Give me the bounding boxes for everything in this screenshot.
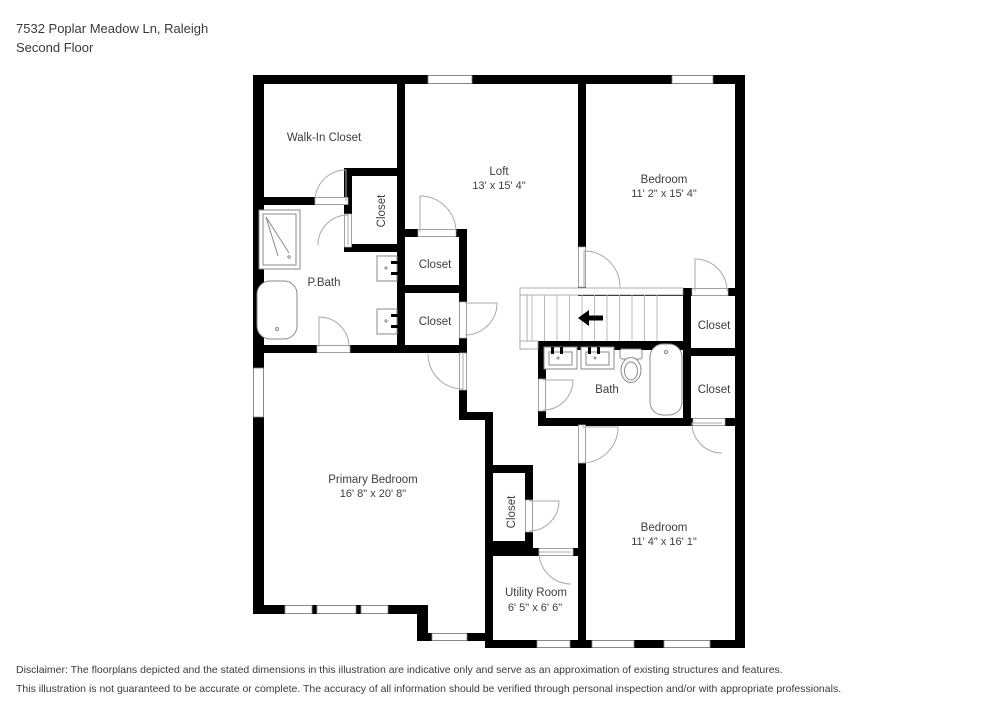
wall-segment (459, 412, 493, 420)
door-opening (539, 379, 546, 411)
address-line: 7532 Poplar Meadow Ln, Raleigh (16, 19, 208, 38)
stair-rail (520, 288, 683, 295)
wall-segment (397, 75, 405, 353)
wall-segment (397, 285, 467, 293)
door-opening (315, 198, 348, 205)
room-label-closet-wic-side: Closet (376, 194, 388, 227)
wall-segment (344, 244, 405, 252)
window (537, 641, 570, 648)
room-label-bath: Bath (595, 384, 619, 396)
room-label-bedroom-top: Bedroom (641, 174, 688, 186)
door-swing (543, 380, 573, 410)
door-swing (692, 423, 722, 453)
disclaimer-line-2: This illustration is not guaranteed to b… (16, 680, 841, 699)
bathtub (257, 281, 297, 339)
door-opening (579, 425, 586, 463)
wall-segment (253, 75, 745, 84)
door-swing (529, 501, 559, 531)
door-swing (428, 354, 463, 389)
room-label-closet-bath-side: Closet (698, 384, 731, 396)
door-swing (539, 552, 571, 584)
door-opening (460, 302, 467, 338)
door-swing (584, 251, 620, 287)
sink-vanity (377, 309, 398, 334)
room-label-closet-bedroom-top: Closet (698, 320, 731, 332)
sink-vanity (581, 347, 614, 369)
room-label-primary-bedroom: Primary Bedroom (328, 474, 417, 486)
room-label-walk-in-closet: Walk-In Closet (287, 132, 362, 144)
door-opening (317, 346, 350, 353)
window (672, 76, 713, 84)
toilet (620, 349, 642, 383)
window (428, 76, 472, 84)
shower (259, 210, 300, 269)
windows (254, 76, 714, 648)
wall-segment (253, 345, 467, 353)
room-label-closet-hall-upper: Closet (419, 259, 452, 271)
floor-line: Second Floor (16, 38, 208, 57)
wall-segment (485, 541, 533, 548)
room-dims-bedroom-bottom: 11' 4" x 16' 1" (631, 536, 697, 548)
room-label-closet-utility-side: Closet (506, 495, 518, 528)
floorplan-drawing: Walk-In Closet Loft 13' x 15' 4" Bedroom… (0, 0, 1000, 707)
door-opening (418, 230, 456, 237)
disclaimer: Disclaimer: The floorplans depicted and … (16, 661, 841, 699)
wall-segment (683, 296, 691, 426)
wall-segment (485, 465, 533, 473)
window (432, 634, 467, 641)
window (254, 368, 264, 417)
door-opening (693, 419, 725, 426)
staircase (520, 288, 683, 349)
sink-vanity (544, 347, 577, 369)
wall-segment (485, 412, 493, 648)
sink-vanity (377, 256, 398, 281)
stair-rail (520, 341, 538, 349)
wall-segment (735, 75, 745, 648)
room-dims-loft: 13' x 15' 4" (472, 180, 525, 192)
window (664, 641, 710, 648)
room-label-closet-hall-lower: Closet (419, 316, 452, 328)
door-swing (582, 427, 618, 463)
door-opening (526, 500, 533, 532)
wall-segment (253, 75, 264, 614)
door-swing (315, 170, 346, 201)
wall-segment (344, 168, 405, 176)
door-opening (692, 289, 728, 296)
plan-header: 7532 Poplar Meadow Ln, Raleigh Second Fl… (16, 19, 208, 57)
window (317, 606, 356, 614)
disclaimer-line-1: Disclaimer: The floorplans depicted and … (16, 661, 841, 680)
wall-segment (683, 348, 745, 356)
room-dims-primary-bedroom: 16' 8" x 20' 8" (340, 488, 407, 500)
window (285, 606, 312, 614)
bathtub (650, 344, 682, 415)
door-swing (319, 317, 349, 347)
window (361, 606, 388, 614)
door-swing (465, 303, 497, 335)
room-label-pbath: P.Bath (307, 277, 340, 289)
door-swing (318, 215, 348, 245)
room-dims-bedroom-top: 11' 2" x 15' 4" (631, 188, 697, 200)
floorplan-page: 7532 Poplar Meadow Ln, Raleigh Second Fl… (0, 0, 1000, 707)
window (592, 641, 634, 648)
room-dims-utility: 6' 5" x 6' 6" (508, 602, 562, 614)
room-label-bedroom-bottom: Bedroom (641, 522, 688, 534)
room-label-loft: Loft (489, 166, 509, 178)
door-swing (695, 259, 727, 291)
room-label-utility: Utility Room (505, 587, 567, 599)
door-swing (420, 196, 456, 232)
